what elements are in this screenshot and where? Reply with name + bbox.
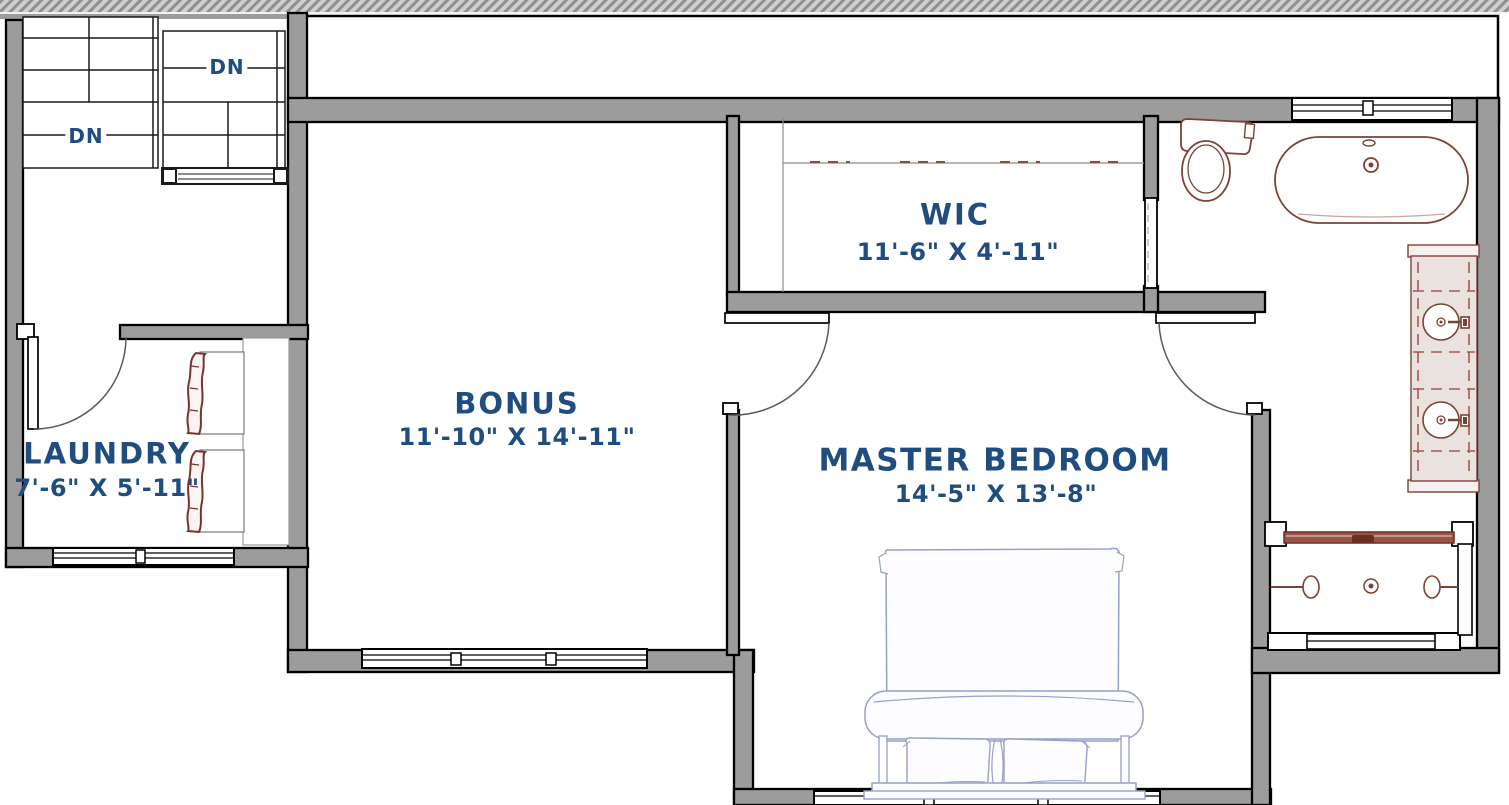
wall-bonus-master (727, 410, 739, 655)
room-label-laundry: LAUNDRY (23, 440, 191, 469)
toilet-icon (1181, 119, 1255, 201)
room-label-wic: WIC (920, 201, 990, 230)
drain-icon (1364, 579, 1378, 593)
washer-icon (187, 352, 244, 434)
room-dims-bonus: 11'-10" X 14'-11" (399, 425, 636, 449)
floor-plan: DN DN LAUNDRY 7'-6" X 5'-11" BONUS 11'-1… (0, 0, 1509, 805)
wall-right-exterior (1477, 98, 1499, 672)
shower-head-icon (1271, 576, 1319, 598)
room-label-bonus: BONUS (454, 390, 579, 419)
door-bathroom (1156, 313, 1262, 415)
door-laundry (17, 324, 126, 429)
door-master-bedroom (723, 313, 829, 415)
stair-landing-rail (162, 168, 288, 184)
attic-strip (306, 16, 1498, 100)
wall-wic-south (727, 292, 1265, 312)
bathtub-icon (1275, 137, 1468, 223)
bathroom-fixtures (1181, 119, 1479, 635)
wall-pocket-stub (1144, 286, 1158, 312)
staircase (23, 17, 288, 184)
shower-head-icon (1424, 576, 1458, 598)
shower-glass (1284, 532, 1454, 543)
wall-pocket-upper (1144, 116, 1158, 200)
wall-shower-south (1252, 648, 1499, 673)
laundry-counter (243, 338, 289, 545)
room-dims-laundry: 7'-6" X 5'-11" (14, 476, 199, 500)
wall-master-west (734, 650, 753, 805)
pocket-door-wic (1145, 198, 1157, 288)
stair-right-run (163, 31, 285, 168)
window-shower-south (1268, 633, 1460, 650)
bed-folded-edge (865, 691, 1143, 739)
room-dims-master-bedroom: 14'-5" X 13'-8" (895, 482, 1098, 506)
walk-in-shower (1265, 522, 1473, 635)
wall-master-east (1252, 410, 1270, 805)
bed-furniture (864, 548, 1145, 799)
laundry-appliances (187, 338, 289, 545)
wall-laundry-north (120, 325, 308, 339)
room-label-master-bedroom: MASTER BEDROOM (818, 446, 1171, 477)
window-bath-top (1292, 98, 1452, 120)
window-bonus (362, 649, 647, 668)
window-laundry (53, 548, 234, 565)
room-dims-wic: 11'-6" X 4'-11" (857, 240, 1060, 264)
stair-label-dn-left: DN (65, 126, 106, 146)
pillow (1004, 739, 1087, 789)
floor-plan-drawing (0, 0, 1509, 805)
wall-bonus-wic (727, 116, 739, 295)
vanity-double-sink (1408, 245, 1479, 492)
stair-label-dn-right: DN (206, 57, 247, 77)
